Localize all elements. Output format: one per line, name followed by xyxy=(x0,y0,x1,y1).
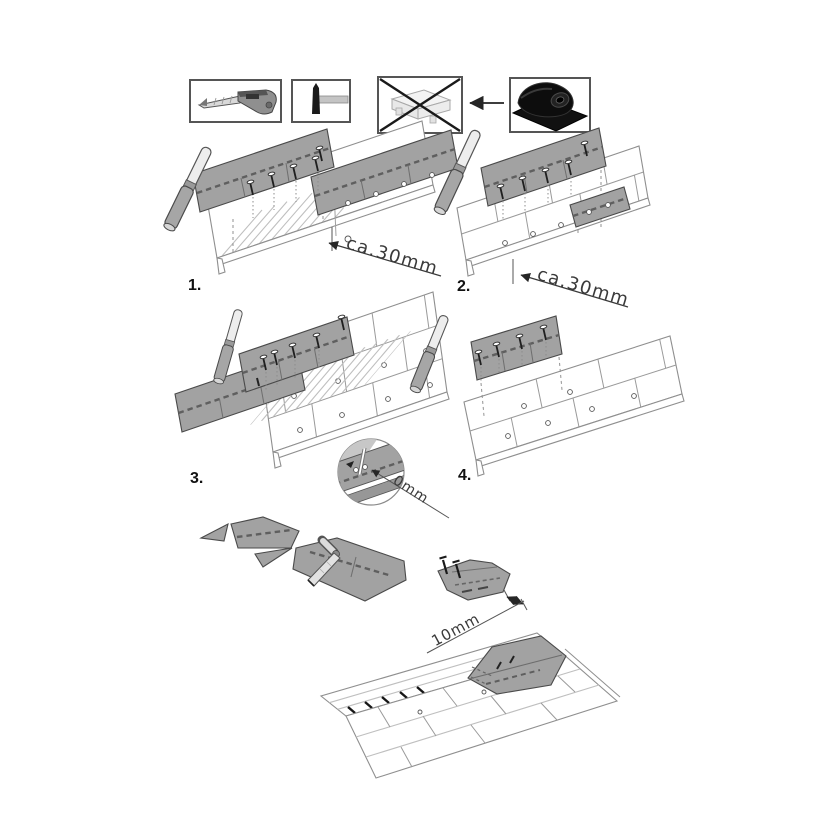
dimension-label: ca.30mm xyxy=(344,233,441,280)
course-strip xyxy=(471,316,562,380)
ridge-cap-piece-diagram: 10mm xyxy=(427,557,527,654)
tool-box-roll xyxy=(510,78,590,132)
dimension-label: ca.30mm xyxy=(535,264,632,311)
cutting-diagram xyxy=(201,517,406,601)
shingle-installation-instruction-sheet: ca.30mm 1. xyxy=(0,0,830,830)
step-4-label: 4. xyxy=(458,467,471,484)
main-strip xyxy=(293,538,406,601)
step-4-diagram: 4. xyxy=(409,314,684,484)
zero-gap-label: 0mm xyxy=(390,473,432,508)
step-2-diagram: ca.30mm 2. xyxy=(433,128,650,311)
step-3-label: 3. xyxy=(190,470,203,487)
ridge-cap-piece xyxy=(438,557,510,601)
overhang-label: 10mm xyxy=(428,609,483,650)
zero-gap-detail: 0mm xyxy=(320,438,449,518)
tool-box-hammer-nail xyxy=(292,80,350,122)
cut-piece xyxy=(231,517,299,548)
tool-box-knife xyxy=(190,80,281,122)
step-1-label: 1. xyxy=(188,277,201,294)
step-1-dimension: ca.30mm xyxy=(329,227,441,280)
cut-piece xyxy=(201,524,228,541)
step-2-dimension: ca.30mm xyxy=(513,259,632,311)
cut-piece xyxy=(255,548,292,567)
step-1-diagram: ca.30mm 1. xyxy=(162,121,458,294)
instruction-drawing: ca.30mm 1. xyxy=(0,0,830,830)
ridge-installation-diagram xyxy=(321,633,620,778)
ridge-cap-installed xyxy=(468,636,566,694)
step-2-label: 2. xyxy=(457,278,470,295)
step-3-diagram: 3. xyxy=(175,292,449,487)
